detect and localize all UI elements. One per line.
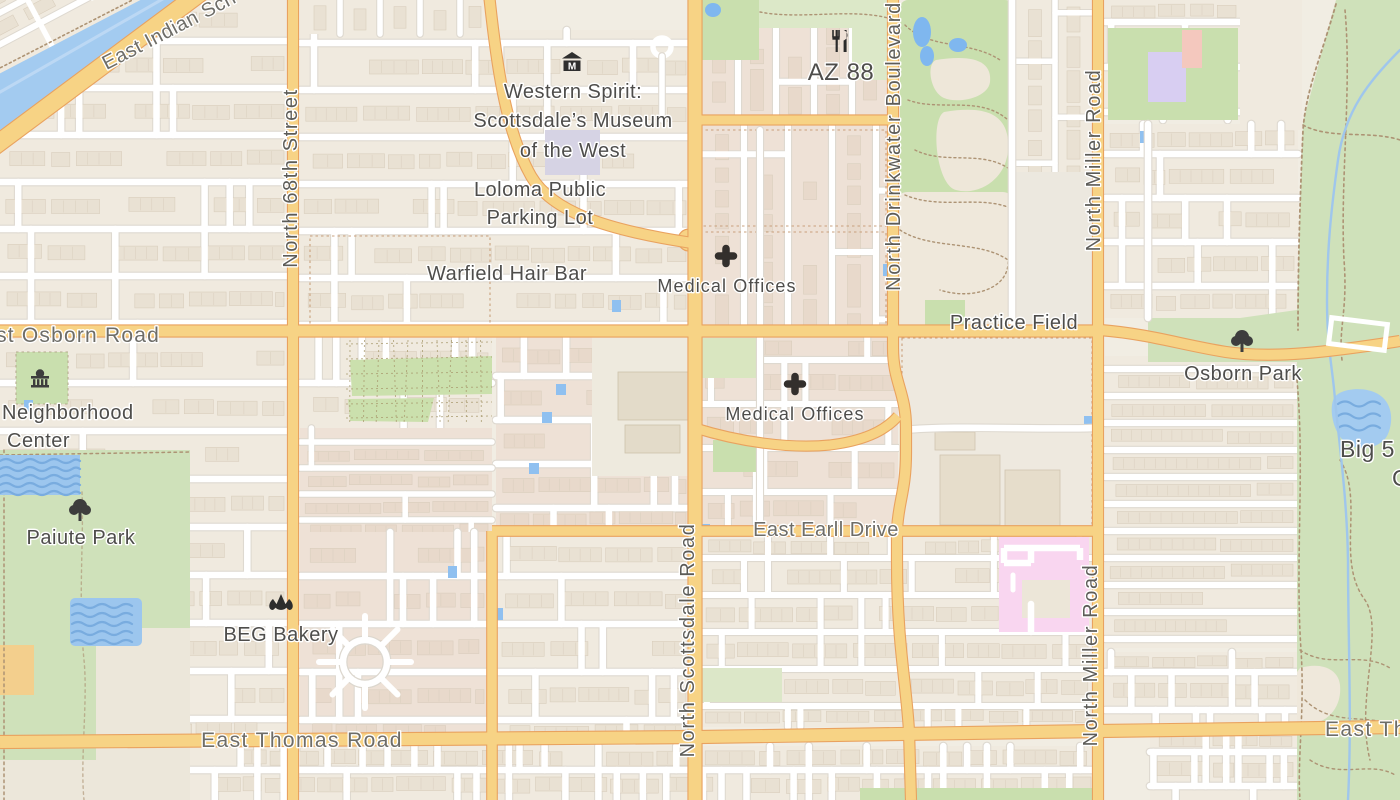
svg-text:Western Spirit:: Western Spirit:	[504, 81, 642, 103]
svg-text:G: G	[1392, 465, 1400, 491]
svg-text:Medical Offices: Medical Offices	[657, 276, 796, 296]
svg-text:Medical Offices: Medical Offices	[725, 404, 864, 424]
svg-text:Practice Field: Practice Field	[950, 312, 1078, 334]
svg-text:North Miller Road: North Miller Road	[1080, 564, 1102, 747]
svg-text:Neighborhood: Neighborhood	[2, 402, 134, 424]
svg-text:Loloma Public: Loloma Public	[474, 179, 606, 201]
svg-text:East Thomas Road: East Thomas Road	[201, 729, 403, 752]
svg-text:East Osborn Road: East Osborn Road	[0, 324, 160, 347]
svg-text:BEG Bakery: BEG Bakery	[223, 624, 338, 646]
svg-text:North Drinkwater Boulevard: North Drinkwater Boulevard	[883, 1, 905, 291]
svg-text:Parking Lot: Parking Lot	[487, 207, 594, 229]
svg-text:Paiute Park: Paiute Park	[27, 527, 136, 549]
svg-text:North 68th Street: North 68th Street	[280, 88, 302, 268]
svg-text:AZ 88: AZ 88	[808, 59, 875, 86]
svg-text:East Earll Drive: East Earll Drive	[753, 519, 899, 541]
svg-text:East Thomas Road: East Thomas Road	[1325, 718, 1400, 741]
svg-text:Center: Center	[7, 430, 70, 452]
svg-text:North Miller Road: North Miller Road	[1083, 69, 1105, 252]
svg-text:of the West: of the West	[520, 140, 626, 162]
svg-text:Warfield Hair Bar: Warfield Hair Bar	[427, 263, 587, 285]
svg-text:Big 5: Big 5	[1340, 436, 1395, 462]
svg-text:Osborn Park: Osborn Park	[1184, 363, 1302, 385]
svg-text:Scottsdale’s Museum: Scottsdale’s Museum	[473, 110, 672, 132]
svg-text:North Scottsdale Road: North Scottsdale Road	[677, 523, 699, 758]
svg-text:M: M	[568, 62, 576, 73]
